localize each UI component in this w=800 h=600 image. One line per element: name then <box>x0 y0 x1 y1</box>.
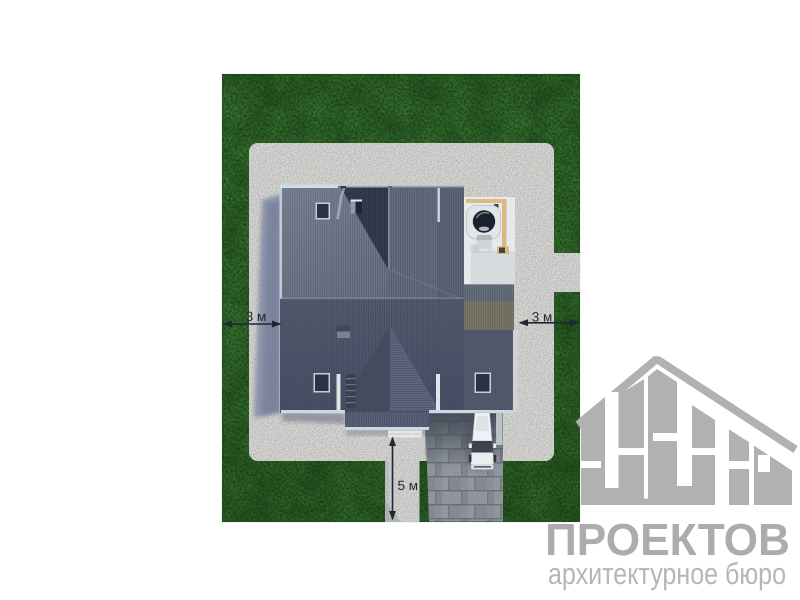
svg-text:архитектурное бюро: архитектурное бюро <box>548 558 786 591</box>
svg-text:5 м: 5 м <box>398 478 419 493</box>
svg-text:3 м: 3 м <box>532 310 553 325</box>
svg-text:3 м: 3 м <box>246 309 267 324</box>
